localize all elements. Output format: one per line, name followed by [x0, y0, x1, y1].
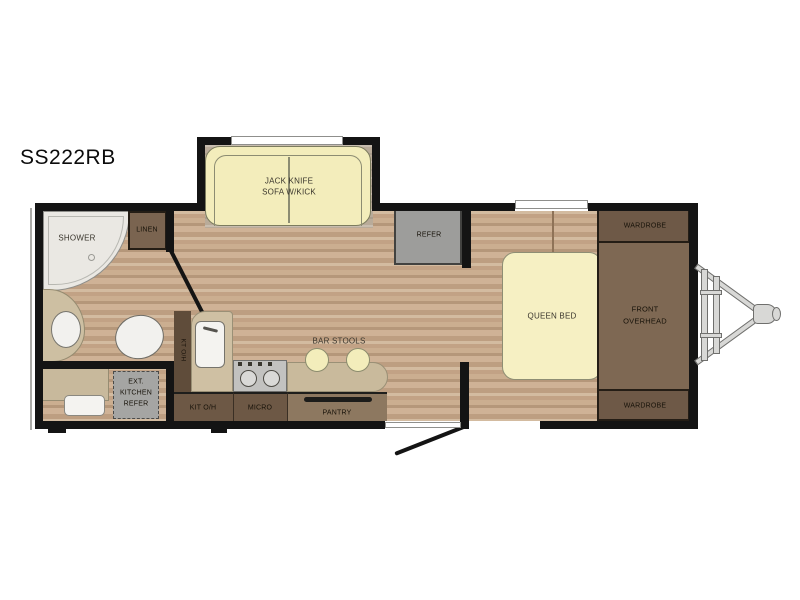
ext-kitchen-label1: EXT.	[128, 379, 144, 386]
bathroom-wall-side	[166, 361, 174, 429]
bar-stool-left	[305, 348, 329, 372]
wall-top-mid	[380, 203, 515, 211]
sofa-label-line1: JACK KNIFE	[265, 177, 313, 186]
floor-seam	[552, 211, 554, 253]
wall-right	[689, 203, 698, 429]
slideout-wall-top-right	[341, 137, 380, 145]
pantry-cabinet	[287, 392, 387, 421]
pantry-handle	[304, 397, 372, 402]
burner-left	[240, 370, 257, 387]
wardrobe-bottom-label: WARDROBE	[624, 403, 667, 410]
linen-wall	[166, 211, 174, 252]
hitch-rung-top	[700, 290, 722, 295]
window-bottom	[385, 422, 461, 428]
ext-kitchen-griddle	[64, 395, 105, 416]
wall-top-right	[588, 203, 697, 211]
wardrobe-top-label: WARDROBE	[624, 223, 667, 230]
stove-knobs	[238, 362, 278, 366]
burner-right	[263, 370, 280, 387]
bar-stool-right	[346, 348, 370, 372]
kit-oh-label: KIT O/H	[190, 405, 217, 412]
bumper-outline	[30, 208, 32, 430]
bathroom-wall-bottom	[35, 361, 174, 369]
hitch-coupler-nub	[772, 307, 781, 321]
ext-kitchen-label2: KITCHEN	[120, 390, 152, 397]
ext-kitchen-label3: REFER	[124, 401, 149, 408]
bathroom-sink	[51, 311, 81, 348]
wall-bottom-right	[540, 421, 697, 429]
overhead-label1: FRONT	[632, 305, 659, 314]
jack-knife-sofa	[205, 146, 371, 226]
bar-counter	[287, 362, 388, 392]
bedroom-window-top	[515, 200, 588, 209]
slideout-wall-top-left	[197, 137, 233, 145]
frame-tab-mid	[211, 428, 227, 433]
slideout-wall-left	[197, 137, 205, 211]
queen-bed-label: QUEEN BED	[528, 312, 577, 321]
floorplan-canvas: SS222RB JACK KNIFE SOFA W/KICK SHOWER LI…	[0, 0, 800, 600]
overhead-label2: OVERHEAD	[623, 317, 667, 326]
slideout-window	[231, 136, 343, 145]
wall-top-left	[35, 203, 198, 211]
shower-drain	[88, 254, 95, 261]
sofa-label-line2: SOFA W/KICK	[262, 188, 316, 197]
entry-door	[394, 424, 466, 456]
micro-label: MICRO	[248, 405, 272, 412]
kt-oh-label: KT O/H	[180, 339, 187, 362]
shower-label: SHOWER	[58, 234, 95, 243]
wall-bottom-left	[35, 421, 385, 429]
bar-stools-label: BAR STOOLS	[313, 337, 366, 346]
wall-left	[35, 203, 43, 429]
entry-wall	[460, 362, 469, 429]
refer-label: REFER	[417, 232, 442, 239]
hitch-crossmember-1	[701, 269, 708, 361]
frame-tab-left	[48, 428, 66, 433]
linen-label: LINEN	[136, 227, 158, 234]
model-title: SS222RB	[20, 146, 116, 170]
hitch-rung-bottom	[700, 333, 722, 338]
hitch-crossmember-2	[713, 276, 720, 354]
pantry-label: PANTRY	[323, 410, 352, 417]
slideout-wall-right	[372, 137, 380, 211]
stove	[233, 360, 287, 392]
refer-wall	[462, 203, 471, 268]
